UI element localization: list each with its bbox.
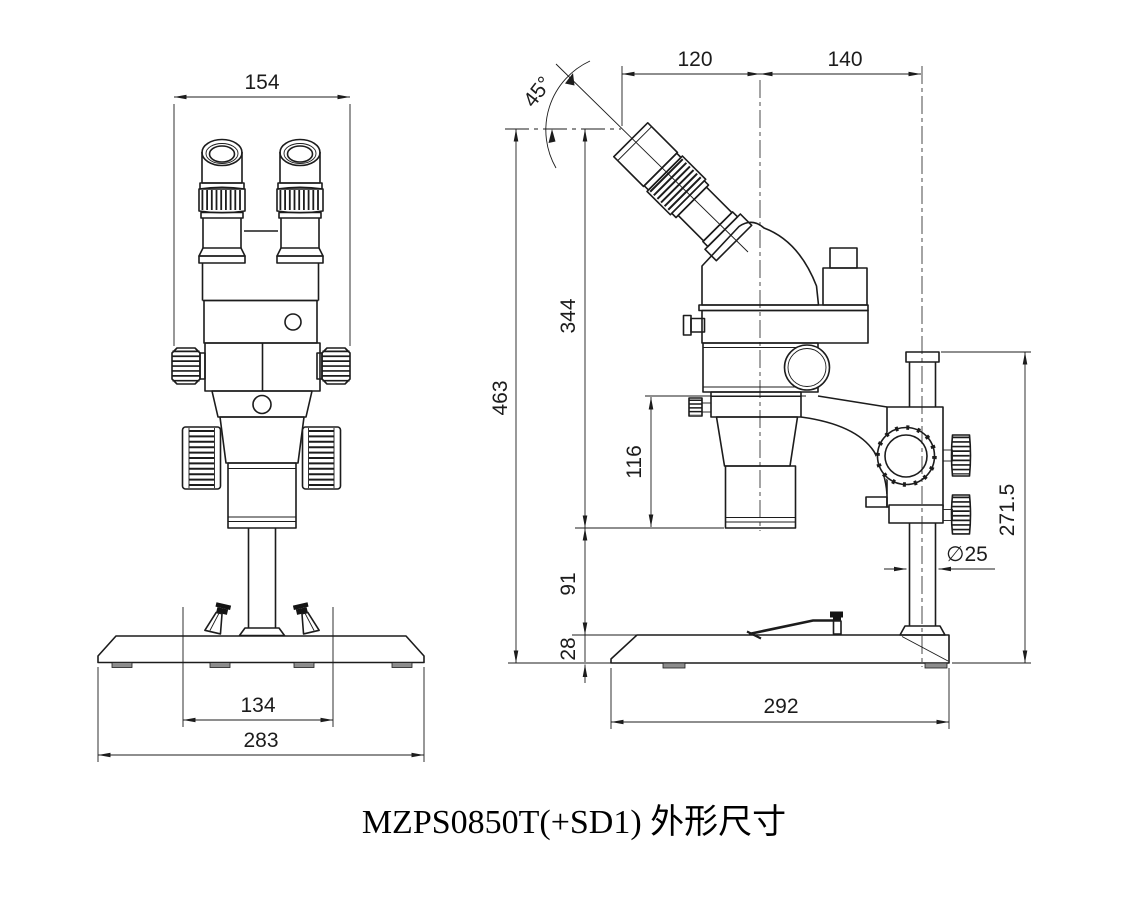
lock-knob-side [684,316,692,336]
camera-port-knob [830,248,857,268]
body-screw-icon [253,396,271,414]
zoom-body-front [183,391,341,489]
microscope-dimension-drawing: 154 134 283 [0,0,1142,898]
head-screw-icon [285,314,301,330]
pillar-collar [889,505,943,523]
camera-port-base [823,268,867,305]
dim-pillar-diameter: ∅25 [946,543,988,566]
dim-base-depth: 292 [763,695,798,718]
front-view: 154 134 283 [98,71,424,762]
dim-head-width: 154 [244,71,279,94]
dim-pillar-height: 271.5 [996,484,1019,537]
base-side [611,635,949,668]
specimen-clip-right-front [293,601,319,635]
eyepiece-tube-side [613,122,752,261]
base-front [98,636,424,668]
interpupillary-block-front [172,343,350,391]
dim-top-to-lens: 344 [557,298,580,333]
zoom-knob-side [785,345,830,390]
dim-focus-travel: 116 [623,445,646,478]
side-view: 45° 120 140 463 344 116 [489,48,1031,729]
dim-lens-to-base: 91 [557,572,580,595]
objective-front [228,463,296,528]
dimension-drawing-page: 154 134 283 [0,0,1142,898]
eyepiece-left-front [199,140,245,264]
head-side [684,222,869,343]
dim-inner-base-width: 134 [240,694,275,717]
drawing-title: MZPS0850T(+SD1) 外形尺寸 [362,803,786,841]
post-front [240,528,285,636]
dim-base-width: 283 [243,729,278,752]
dim-eyepiece-offset: 120 [677,48,712,71]
collar-knob [952,495,971,534]
objective-side [717,417,798,528]
dim-eyepiece-angle: 45° [519,72,557,111]
dim-total-height: 463 [489,380,512,415]
side-dimensions: 45° 120 140 463 344 116 [489,48,1031,729]
dim-head-to-pillar: 140 [827,48,862,71]
zoom-body-side [703,343,830,392]
dim-base-height: 28 [557,637,580,660]
eyepiece-right-front [277,140,323,264]
specimen-clip-left-front [205,601,231,635]
arm-and-clamp-side [801,396,971,534]
